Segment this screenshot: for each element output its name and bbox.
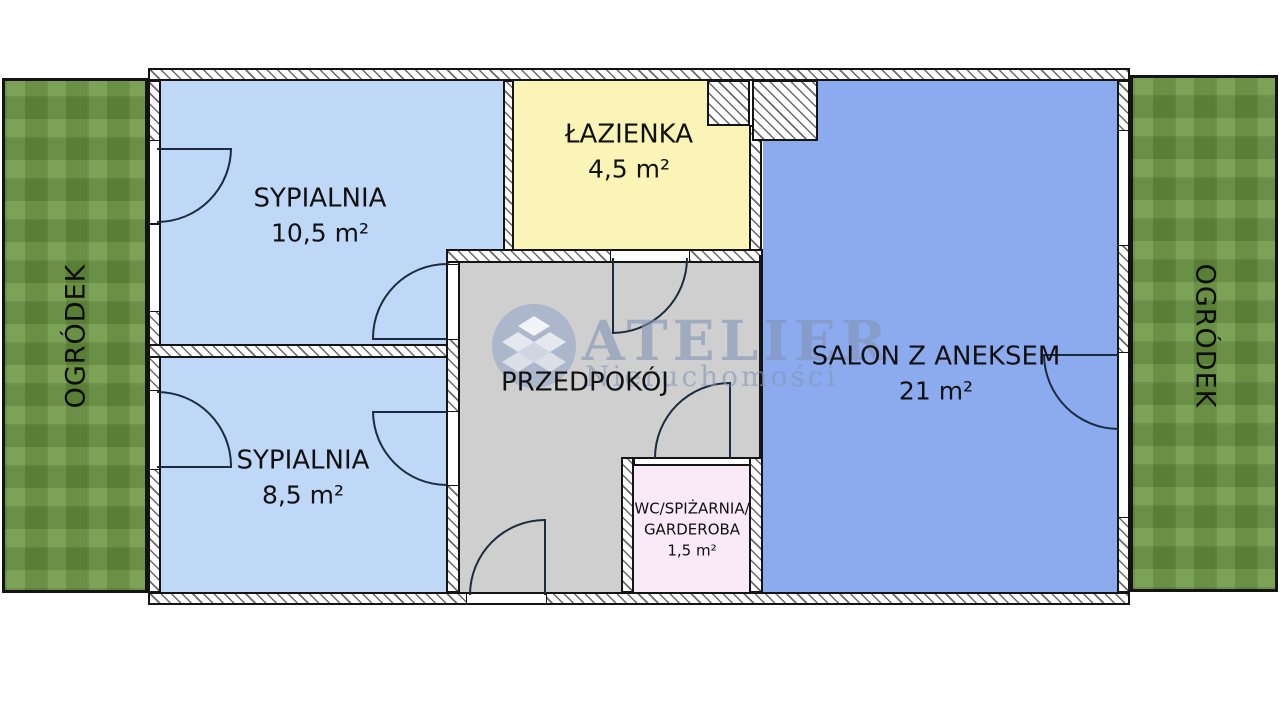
room-area: 1,5 m²	[634, 541, 749, 562]
opening-bedroom1-mullion	[149, 223, 160, 225]
label-bedroom1: SYPIALNIA 10,5 m²	[254, 182, 387, 251]
opening-bedroom2-door	[446, 411, 460, 486]
wall-bedroom-divider	[148, 344, 460, 358]
wall-bathroom-notch	[707, 80, 750, 126]
room-living-upper	[817, 80, 1119, 142]
wall-top	[148, 68, 1130, 81]
room-area: 8,5 m²	[237, 479, 370, 513]
door-leaf-bedroom1	[372, 338, 447, 340]
room-name: SYPIALNIA	[237, 444, 370, 479]
wall-bottom	[148, 592, 1130, 605]
room-name: PRZEDPOKÓJ	[501, 365, 669, 400]
label-hallway: PRZEDPOKÓJ	[501, 365, 669, 400]
garden-right-label: OGRÓDEK	[1190, 264, 1221, 409]
room-bathroom-step	[707, 125, 751, 252]
room-area: 4,5 m²	[565, 153, 693, 187]
wall-wc-left	[621, 457, 634, 593]
floor-plan-canvas: OGRÓDEK OGRÓDEK	[0, 0, 1280, 710]
wall-living-notch	[752, 80, 818, 141]
garden-left-label: OGRÓDEK	[61, 264, 92, 409]
door-leaf-bedroom2-balcony	[157, 466, 232, 468]
label-bathroom: ŁAZIENKA 4,5 m²	[565, 118, 693, 187]
label-wc: WC/SPIŻARNIA/ GARDEROBA 1,5 m²	[634, 499, 749, 562]
opening-bedroom1-door	[446, 264, 460, 340]
label-bedroom2: SYPIALNIA 8,5 m²	[237, 444, 370, 513]
room-area: 10,5 m²	[254, 217, 387, 251]
label-living: SALON Z ANEKSEM 21 m²	[812, 340, 1061, 409]
wall-bathroom-bottom	[446, 249, 763, 263]
room-name-line1: WC/SPIŻARNIA/	[634, 499, 749, 520]
wall-wc-right	[749, 457, 763, 593]
room-name: ŁAZIENKA	[565, 118, 693, 153]
opening-wc-door	[634, 457, 750, 466]
room-area: 21 m²	[812, 375, 1061, 409]
wall-bathroom-left	[503, 80, 514, 251]
room-name-line2: GARDEROBA	[634, 520, 749, 541]
wall-bathroom-right	[749, 125, 762, 251]
room-name: SYPIALNIA	[254, 182, 387, 217]
window-living-upper	[1117, 130, 1130, 246]
room-name: SALON Z ANEKSEM	[812, 340, 1061, 375]
